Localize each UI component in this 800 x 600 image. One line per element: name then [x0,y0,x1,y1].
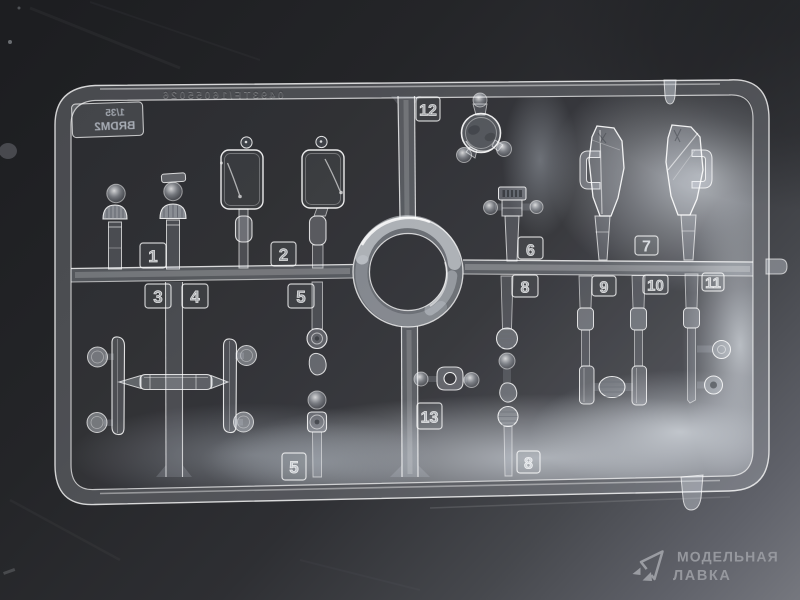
svg-text:ЛАВКА: ЛАВКА [673,568,731,584]
svg-text:1/35: 1/35 [105,107,125,119]
svg-text:8: 8 [524,456,533,473]
svg-text:6: 6 [526,243,535,260]
svg-text:11: 11 [705,275,721,292]
svg-text:2: 2 [279,246,288,265]
svg-text:5: 5 [289,458,298,477]
svg-text:9: 9 [600,280,609,297]
svg-text:1: 1 [148,247,157,266]
svg-text:12: 12 [419,103,437,120]
svg-text:10: 10 [647,278,664,295]
svg-text:8: 8 [521,280,530,297]
svg-text:BRDM2: BRDM2 [94,120,135,133]
svg-text:7: 7 [642,239,651,256]
svg-text:5: 5 [296,288,305,307]
svg-text:3: 3 [153,288,162,307]
svg-text:МОДЕЛЬНАЯ: МОДЕЛЬНАЯ [677,549,779,565]
svg-text:0493TF/16055026: 0493TF/16055026 [160,89,283,101]
svg-text:4: 4 [190,288,200,307]
svg-text:13: 13 [421,410,439,427]
